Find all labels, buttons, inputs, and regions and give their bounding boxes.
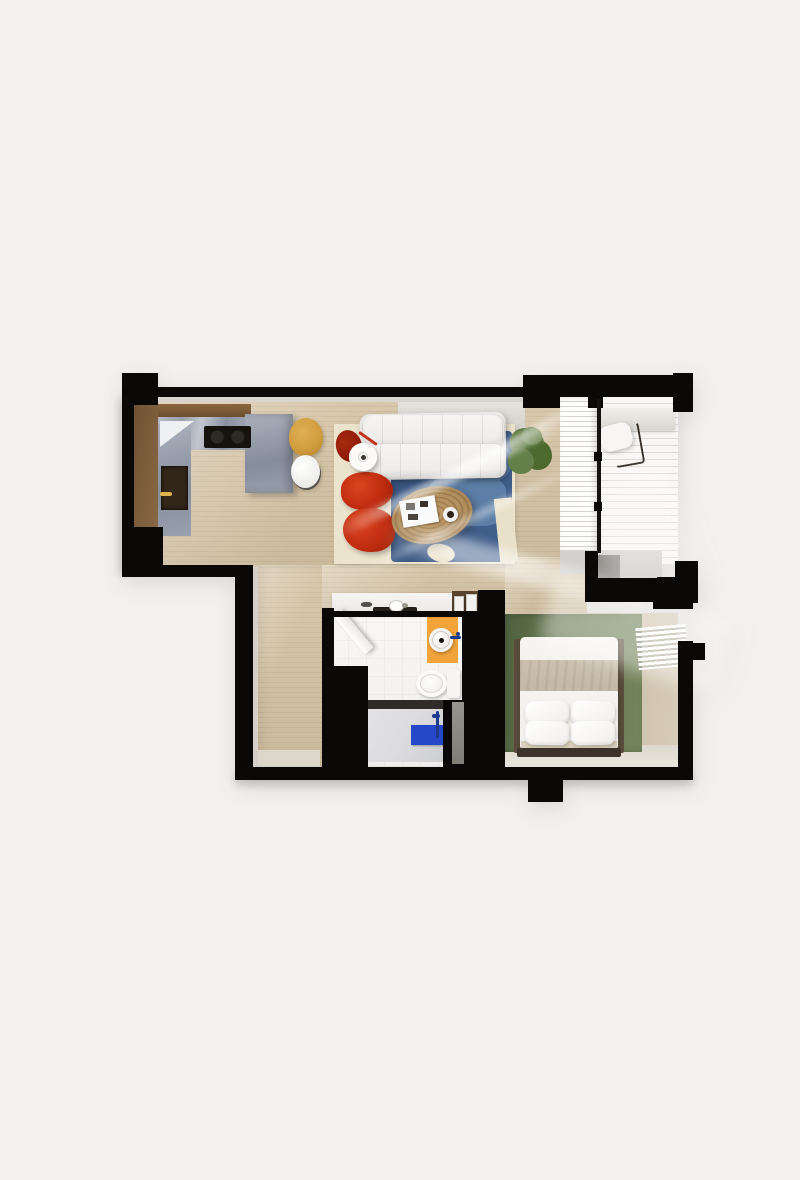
- entry-door-mat: [255, 750, 320, 767]
- sink-faucet: [450, 636, 461, 639]
- wall-bedroom-right-nub: [690, 643, 705, 660]
- vanity-item-2: [402, 603, 408, 608]
- bathroom-door-slab: [452, 702, 464, 764]
- wall-bedroom-right: [678, 641, 693, 780]
- pillow-bottom-right: [571, 721, 615, 746]
- magazine-photo-1: [406, 503, 415, 510]
- sofa-back-cushions: [362, 415, 504, 447]
- round-stool: [291, 455, 320, 488]
- wall-face-hallway: [253, 567, 258, 767]
- kitchen-shelf-niche: [161, 466, 188, 510]
- shower-head: [432, 714, 440, 718]
- kitchen-island-desk: [245, 414, 293, 493]
- glass-door-mullion-1: [594, 452, 602, 461]
- wall-bathroom-left-block: [322, 666, 368, 767]
- wall-pillar-1: [523, 375, 560, 408]
- kitchen-upper-cabinet: [158, 404, 251, 418]
- bed-throw-blanket: [520, 660, 618, 691]
- appliance-2: [466, 594, 477, 612]
- wall-bathroom-left: [322, 608, 334, 672]
- cooktop: [204, 426, 251, 448]
- wall-hallway-left: [235, 565, 253, 780]
- wall-bottom: [235, 767, 693, 780]
- wall-face-top: [158, 397, 523, 402]
- bed-rail-right: [617, 639, 624, 753]
- desk-chair-mustard: [289, 418, 323, 456]
- wardrobe-block-top: [478, 590, 505, 615]
- sofa-seat-cushions: [360, 444, 506, 478]
- pillow-bottom-left: [525, 721, 569, 746]
- sink-faucet-knob: [456, 632, 460, 636]
- wall-balcony-bedroom-divider: [590, 578, 658, 602]
- cabinet-handle: [160, 492, 172, 496]
- plant-leaf-4: [522, 427, 542, 445]
- wall-bedroom-top-nub: [653, 596, 693, 609]
- vanity-item: [361, 602, 372, 607]
- screenshot-canvas: { "scene": { "type": "3d-rendered-apartm…: [0, 0, 800, 1180]
- wall-bottom-stub: [528, 780, 563, 802]
- wall-top-right-corner: [673, 373, 693, 412]
- wall-bathroom-top: [322, 611, 480, 617]
- toilet: [416, 670, 447, 697]
- toilet-tank: [447, 669, 460, 698]
- beanbag-red-2: [343, 508, 395, 552]
- magazine-photo-3: [408, 514, 418, 520]
- glass-door-frame: [597, 399, 601, 553]
- appliance-1: [454, 596, 464, 612]
- bathroom-sink: [429, 628, 453, 652]
- shower-wall-band: [367, 700, 443, 709]
- bed-end-bench: [517, 748, 621, 757]
- wall-kitchen-bottom: [122, 565, 243, 577]
- hallway-floor: [253, 565, 322, 768]
- window-blinds-strip: [560, 397, 597, 553]
- magazine-photo-2: [420, 501, 428, 507]
- floor-lamp-shade: [349, 443, 377, 471]
- glass-door-mullion-2: [594, 502, 602, 511]
- wall-balcony-corner-upper: [675, 561, 698, 579]
- coffee-cup: [443, 507, 458, 522]
- plant-leaf-3: [508, 448, 534, 474]
- wall-top: [155, 387, 527, 397]
- apartment-floor-plan: [0, 0, 800, 1180]
- kitchen-floor-strip: [134, 397, 158, 537]
